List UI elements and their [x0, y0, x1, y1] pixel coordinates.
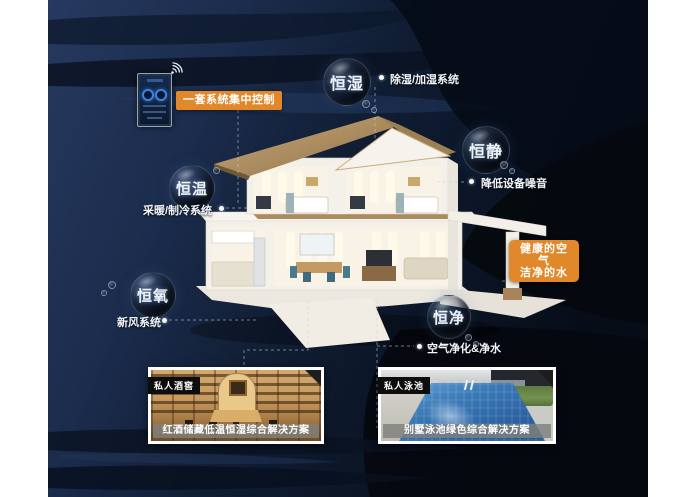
label-fresh-air-system: 新风系统	[117, 314, 161, 330]
mini-bubble	[509, 168, 515, 174]
wifi-icon	[170, 62, 185, 75]
highlight-line2: 洁净的水	[517, 267, 571, 279]
bullet-dot	[469, 179, 474, 184]
wine-caption: 红酒储藏低温恒湿综合解决方案	[153, 424, 319, 438]
thermostat-knob-right	[155, 89, 167, 101]
label-dehumidify-system: 除湿/加湿系统	[390, 71, 459, 87]
mini-bubble	[213, 167, 220, 174]
label-reduce-noise: 降低设备噪音	[481, 175, 547, 191]
wine-photo-tag: 私人酒窖	[148, 377, 200, 394]
bubble-constant-clean: 恒净	[427, 295, 471, 339]
central-control-tag: 一套系统集中控制	[176, 91, 282, 110]
healthy-air-water-box: 健康的空气 洁净的水	[509, 240, 579, 282]
bubble-constant-humidity: 恒湿	[323, 58, 371, 106]
label-heating-cooling-system: 采暖/制冷系统	[143, 202, 212, 218]
control-panel-screen	[140, 76, 169, 124]
control-panel-device	[137, 73, 172, 127]
wine-cellar-photo: 红酒储藏低温恒湿综合解决方案 私人酒窖	[148, 367, 324, 444]
pool-caption: 别墅泳池绿色综合解决方案	[383, 424, 551, 438]
highlight-line1: 健康的空气	[517, 243, 571, 267]
bullet-dot	[162, 318, 167, 323]
thermostat-knob-left	[142, 89, 154, 101]
bullet-dot	[219, 206, 224, 211]
bubble-constant-oxygen: 恒氧	[130, 272, 176, 318]
pool-photo-tag: 私人泳池	[378, 377, 430, 394]
mini-bubble	[362, 100, 370, 108]
mini-bubble	[101, 290, 107, 296]
label-air-water-purification: 空气净化&净水	[427, 340, 501, 356]
mini-bubble	[500, 161, 508, 169]
mini-bubble	[108, 281, 116, 289]
pool-photo: 别墅泳池绿色综合解决方案 私人泳池	[378, 367, 556, 444]
bullet-dot	[417, 344, 422, 349]
mini-bubble	[371, 107, 377, 113]
poster-canvas: 一套系统集中控制 恒湿 恒静 恒温 恒氧 恒净 除湿/加湿系统 降低设备噪音 采…	[0, 0, 700, 497]
bullet-dot	[379, 75, 384, 80]
